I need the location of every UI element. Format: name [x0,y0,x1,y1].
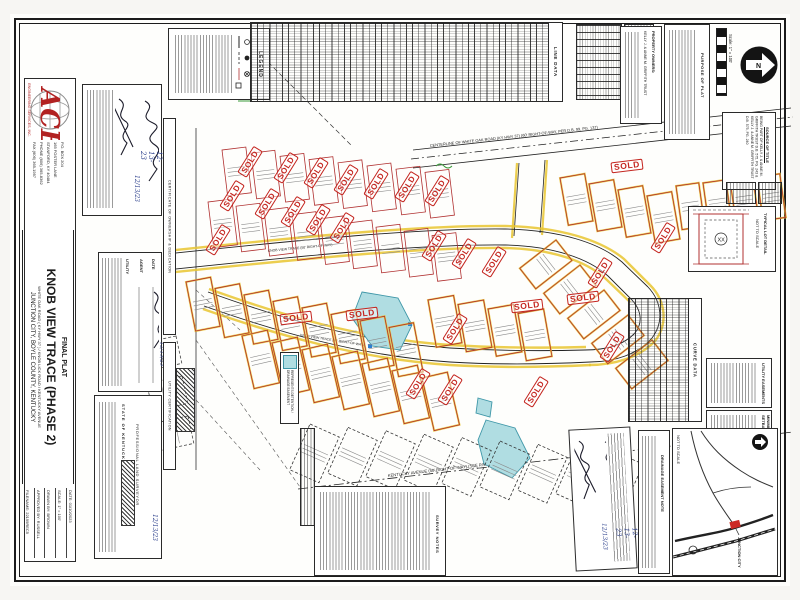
street-cross-section-detail [176,368,195,432]
lot-parcel [520,240,572,289]
lot-parcel [422,372,459,430]
lot-parcel [458,300,492,352]
firm-address: P.O. BOX 204 165 FOSTER LANE STANFORD, K… [24,140,74,226]
scanned-plat-page: { "sheet": { "firm": { "logo_word": "ACE… [0,0,800,600]
line-data-table [250,22,550,102]
ownership-certificate-box: 12-13-23 12/13/23 [82,84,162,216]
source-of-title-box: SOURCE OF TITLE BEING PART OF KELLY J. &… [722,112,776,190]
lot-parcel [647,192,680,244]
lot-parcel [404,228,433,277]
vicinity-city-label: JUNCTION CITY [737,537,742,568]
lot-parcel [208,199,237,248]
surveyor-date: 12/13/23 [151,514,158,541]
curve-data-header: CURVE DATA [688,298,702,422]
lot-parcel [367,163,396,212]
firm-logo-block: ACE ENGINEERING SERVICES, INC. P.O. BOX … [24,80,74,226]
plat-city: JUNCTION CITY, BOYLE COUNTY, KENTUCKY [29,230,36,484]
utility-strip: UTILITY CERTIFICATION [163,342,176,470]
surveyor-state: STATE OF KENTUCKY [121,404,126,464]
plat-type: FINAL PLAT [60,230,68,484]
detention-pond [352,292,530,478]
lot-parcel [242,330,279,388]
address-line: STANFORD, KY 40484 [47,142,52,224]
purpose-title: PURPOSE OF PLAT [700,53,705,98]
drainage-note-title: DRAINAGE EASEMENT NOTE [660,455,665,512]
note-box-small-1 [726,182,756,204]
planning-date-2: 12/13/23 [600,523,608,550]
filename-field: FILENAME: 22199REC5 [24,488,31,558]
property-owners-box: PROPERTY OWNERS: KELLY J. & ANNE M. GRIF… [620,26,662,124]
date-label: DATE [151,259,156,270]
firm-logo: ACE ENGINEERING SERVICES, INC. [24,80,74,140]
scale-field: SCALE: 1" = 100' [55,488,63,558]
firm-name: ENGINEERING SERVICES, INC. [26,80,31,140]
lot-parcel [568,290,620,339]
drainage-note-box: DRAINAGE EASEMENT NOTE [638,430,670,574]
lot-detail-marker: XX [718,238,726,244]
pond-legend-box: REPRESENTS DETENTION / DRAINAGE EASEMENT [280,352,299,424]
vicinity-scale-label: NOT TO SCALE [676,435,681,464]
lot-parcel [560,174,593,226]
lot-parcel [244,290,278,344]
typical-lot-detail-box: XX TYPICAL LOT DETAIL NOT TO SCALE [688,206,776,272]
plat-roads: WHITE OAK ROAD ( KY HWY 37 ) / KNOB LICK… [38,230,43,484]
survey-notes-title: SURVEY NOTES [435,515,440,553]
utility-label: UTILITY [125,259,130,274]
lot-parcel [425,169,454,218]
owner-signature-date-2: 12/13/23 [133,175,140,202]
planning-certificate-box: 12-13-23 12/13/23 [568,426,637,571]
lot-detail-scale: NOT TO SCALE [755,219,760,248]
utility-certificate-box: UTILITY AGENT DATE 12/13/23 [98,252,162,392]
line-data-header: LINE DATA [548,22,563,102]
surveyor-certificate-box: STATE OF KENTUCKY PROFESSIONAL LAND SURV… [94,395,162,559]
lot-parcel [338,160,367,209]
lot-parcel [309,157,338,206]
lot-parcel [186,277,220,331]
date-field: DATE: 01/10/2023 [66,488,74,558]
lot-parcel [404,434,454,493]
purpose-of-plat-box: PURPOSE OF PLAT [664,24,710,140]
surveyor-seal [121,460,135,526]
sheet-title-block: FINAL PLAT KNOB VIEW TRACE (PHASE 2) WHI… [22,230,74,484]
ownership-strip-label: CERTIFICATE OF OWNERSHIP & DEDICATION [168,180,172,273]
planning-date-1: 12-13-23 [615,527,640,544]
note-box-small-2 [758,182,782,204]
lot-parcel [396,166,425,215]
approved-by-field: APPROVED BY: RUSSELL [34,488,42,558]
utility-easements-box: UTILITY EASEMENTS [706,358,772,408]
lot-parcel [280,153,309,202]
svg-text:ACE: ACE [34,85,64,140]
lot-parcel [222,147,251,196]
white-oak-label: CENTERLINE OF WHITE OAK ROAD (KY HWY 37)… [430,124,599,148]
pond-legend-swatch [283,355,297,369]
utility-easements-title: UTILITY EASEMENTS [761,363,766,404]
north-arrow: N [738,44,780,86]
owners-name: KELLY J. & ANNE M. GRIFFITH TRUST [643,31,647,95]
source-title: SOURCE OF TITLE [765,127,770,163]
line-data-title: LINE DATA [553,47,558,77]
owner-signature-date: 12-13-23 [139,151,163,171]
lot-parcel [428,295,462,347]
survey-notes-box: SURVEY NOTES [314,486,446,576]
address-line: PHONE (606) 365-8362 [40,142,45,224]
scale-bar [716,28,727,96]
lot-parcel [432,233,461,282]
rw-note-strip [300,428,315,526]
lot-parcel [518,309,552,361]
scale-label: Scale: 1" = 100' [728,34,733,63]
pond-legend-label: REPRESENTS DETENTION / DRAINAGE EASEMENT [286,370,294,423]
info-block: DATE: 01/10/2023 SCALE: 1" = 100' DRAWN … [24,488,74,558]
agent-label: AGENT [139,259,144,273]
vicinity-map: NOT TO SCALE JUNCTION CITY [672,428,778,576]
drawn-by-field: DRAWN BY: BROWN [45,488,53,558]
curve-data-title: CURVE DATA [693,343,698,378]
lot-parcel [348,220,377,269]
north-letter: N [756,63,761,70]
source-lines: BEING PART OF KELLY J. & ANNE M. GRIFFIT… [729,116,763,186]
lot-detail-title: TYPICAL LOT DETAIL [763,213,768,254]
lot-parcel [251,150,280,199]
lot-parcel [544,265,596,314]
owners-title: PROPERTY OWNERS: [651,31,656,73]
ownership-strip: CERTIFICATE OF OWNERSHIP & DEDICATION [163,118,176,335]
curve-data-table [628,298,690,422]
area-summary-table [576,24,622,100]
lot-parcel [618,186,651,238]
lot-parcel [589,180,622,232]
plat-title: KNOB VIEW TRACE (PHASE 2) [45,230,58,484]
address-line: P.O. BOX 204 [61,142,66,224]
address-line: 165 FOSTER LANE [54,142,59,224]
utility-strip-label: UTILITY CERTIFICATION [168,381,172,431]
lot-parcel [328,427,378,486]
address-line: FAX (606) 365-1997 [33,142,38,224]
